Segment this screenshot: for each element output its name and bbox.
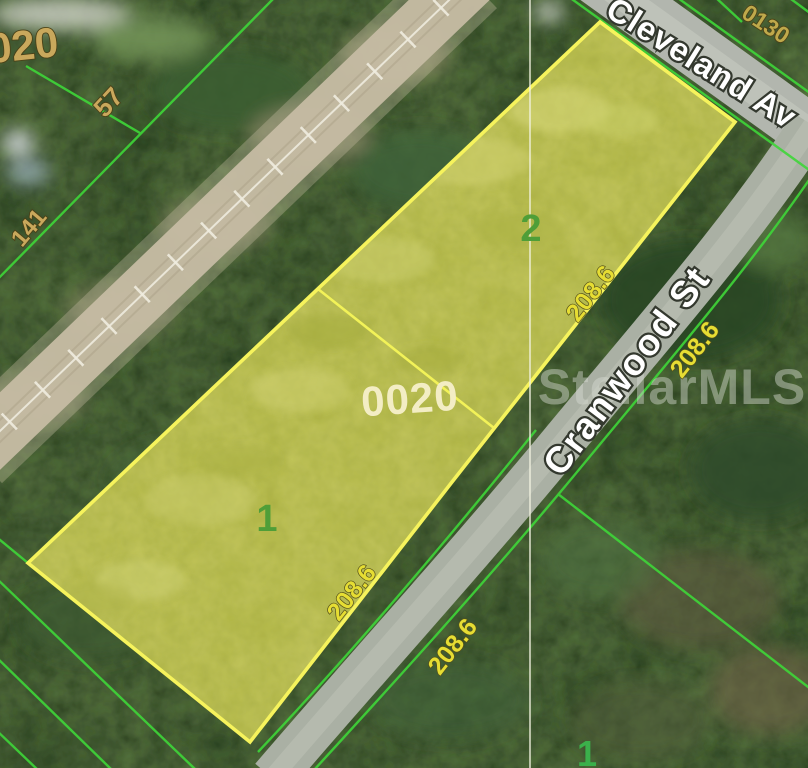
- lot-number-1: 1: [256, 498, 277, 540]
- block-number-main: 0020: [360, 372, 460, 426]
- adjacent-lot-number-1: 1: [577, 733, 597, 768]
- lot-number-2: 2: [520, 208, 541, 250]
- parcel-map-image: StellarMLS 020 57 141 0130 2 0020 1 1 20…: [0, 0, 808, 768]
- block-number-top-left: 020: [0, 18, 60, 72]
- listing-aerial-map: StellarMLS 020 57 141 0130 2 0020 1 1 20…: [0, 0, 808, 768]
